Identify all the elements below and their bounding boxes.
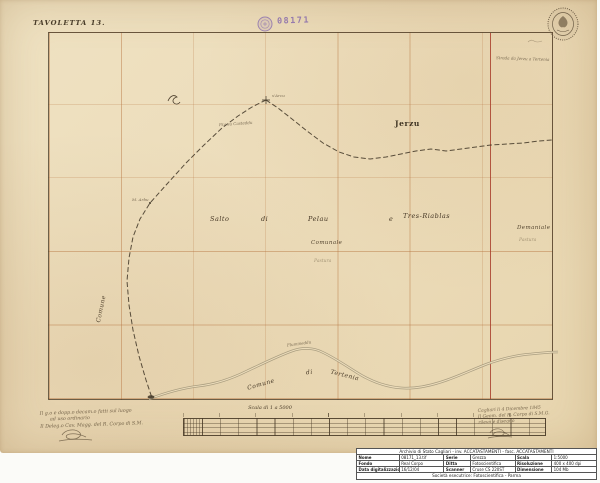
label-di: di [261, 216, 268, 223]
table-cell-label: Data digitalizzazione [357, 467, 400, 473]
label-comunale: Comunale [311, 241, 342, 247]
tiny-label-sarcu: s'Arcu [272, 94, 285, 98]
handwritten-note-left: Il g.o e dopp.o decam.o fatti sul luogo … [40, 408, 143, 431]
label-tres-riablas: Tres-Riablas [403, 213, 450, 220]
stamp-number: 08171 [277, 16, 310, 26]
label-pelau: Pelau [308, 216, 329, 223]
handwritten-note-right: Cagliari li 4 Dicembre 1845 Il Geom. del… [478, 405, 551, 427]
label-pastura: Pastura [314, 260, 331, 265]
label-demaniale-sub: Pastura [519, 239, 536, 244]
label-demaniale: Demaniale [517, 226, 550, 232]
label-jerzu: Jerzu [395, 120, 420, 128]
label-tertenia-di: di [306, 370, 313, 377]
sheet-title: TAVOLETTA 13. [33, 20, 105, 27]
scanned-map-page: TAVOLETTA 13. 08171 Salto di Pelau e Tre… [0, 0, 600, 483]
red-meridian-line [490, 33, 491, 399]
scale-bar-fine-division [184, 419, 202, 435]
label-e: e [389, 216, 393, 223]
tiny-label-marbu: M. Arbu [132, 198, 149, 202]
scale-label: Scala di 1 a 5000 [205, 406, 335, 411]
label-salto: Salto [210, 216, 229, 223]
archive-metadata-table: Archivio di Stato Cagliari - inv. ACCATA… [356, 448, 597, 480]
archive-table-footer: Società esecutrice: Fotoscientifica - Pa… [357, 473, 597, 479]
